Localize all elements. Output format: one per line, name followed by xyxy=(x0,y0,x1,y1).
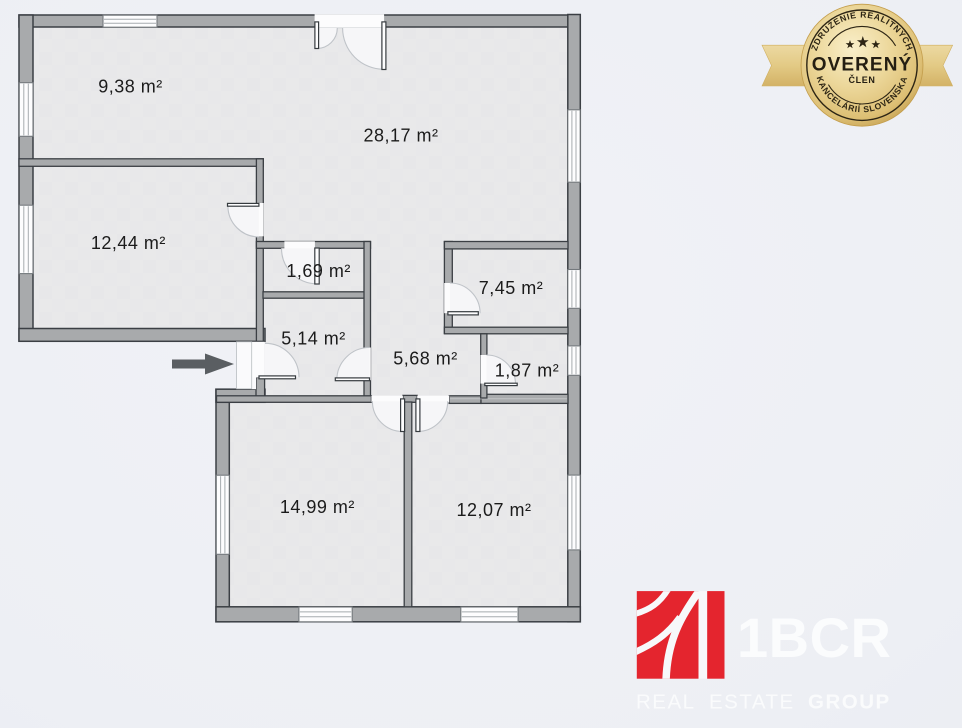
svg-text:1,69 m²: 1,69 m² xyxy=(286,261,351,281)
svg-text:GROUP: GROUP xyxy=(808,691,891,714)
svg-text:5,68 m²: 5,68 m² xyxy=(393,349,458,369)
svg-text:1BCR: 1BCR xyxy=(737,606,891,669)
svg-text:1,87 m²: 1,87 m² xyxy=(495,361,560,381)
svg-text:ČLEN: ČLEN xyxy=(849,74,876,85)
svg-text:OVERENÝ: OVERENÝ xyxy=(812,53,913,75)
svg-text:REAL: REAL xyxy=(636,691,696,714)
svg-text:12,44 m²: 12,44 m² xyxy=(91,233,166,253)
svg-text:5,14 m²: 5,14 m² xyxy=(281,329,346,349)
svg-text:14,99 m²: 14,99 m² xyxy=(280,497,355,517)
svg-text:28,17 m²: 28,17 m² xyxy=(363,126,438,146)
svg-text:9,38 m²: 9,38 m² xyxy=(98,77,163,97)
svg-text:ESTATE: ESTATE xyxy=(709,691,795,714)
svg-text:7,45 m²: 7,45 m² xyxy=(479,278,544,298)
svg-text:12,07 m²: 12,07 m² xyxy=(456,500,531,520)
